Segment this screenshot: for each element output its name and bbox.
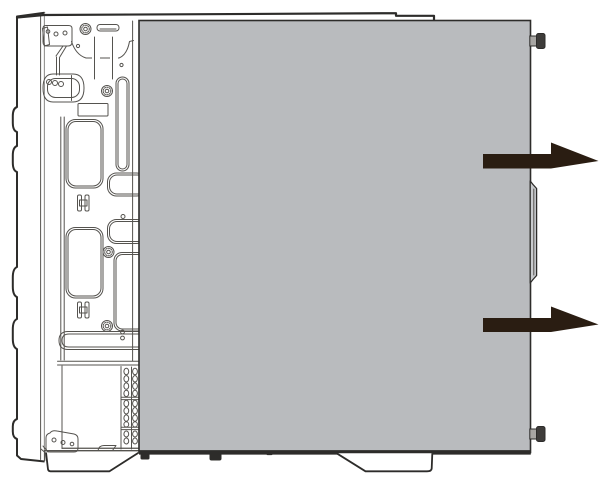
side-panel xyxy=(139,21,537,453)
front-bezel-outline xyxy=(13,13,45,462)
bottom-tab xyxy=(267,453,273,456)
thumbscrew-neck xyxy=(530,36,537,46)
thumbscrew-cap xyxy=(537,427,546,442)
rail-bar xyxy=(110,36,118,80)
case-illustration-page xyxy=(0,0,607,485)
case-feet xyxy=(46,453,432,472)
rail-bar xyxy=(92,36,100,80)
case-side-panel-removal-figure xyxy=(0,0,607,485)
thumbscrew-top xyxy=(530,34,545,49)
thumbscrew-cap xyxy=(537,34,546,49)
front-bezel xyxy=(13,13,45,462)
case-foot-left xyxy=(46,453,139,472)
side-panel-body xyxy=(139,21,531,453)
chassis-interior xyxy=(41,13,146,453)
case-foot-right xyxy=(337,453,433,471)
thumbscrew-neck xyxy=(530,429,537,439)
bottom-tab xyxy=(141,453,150,460)
thumbscrew-bottom xyxy=(530,427,545,442)
bottom-tab xyxy=(210,453,222,461)
